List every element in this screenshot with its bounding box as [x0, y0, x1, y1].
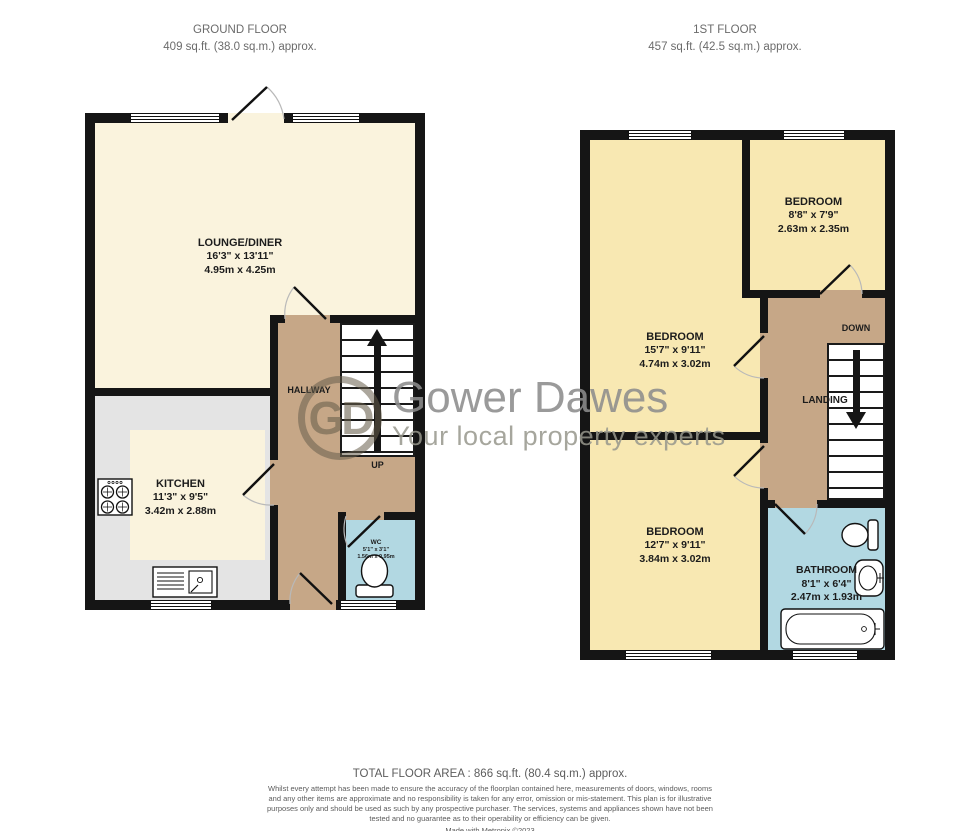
watermark-logo-icon: GD: [298, 376, 382, 460]
room-dims-imperial: 16'3" x 13'11": [140, 250, 340, 264]
room-dims-imperial: 12'7" x 9'11": [590, 539, 760, 553]
bedroom-back-label: BEDROOM 12'7" x 9'11" 3.84m x 3.02m: [590, 525, 760, 567]
wall: [742, 290, 820, 298]
ground-floor-plan: LOUNGE/DINER 16'3" x 13'11" 4.95m x 4.25…: [85, 113, 425, 610]
window: [628, 130, 692, 140]
room-landing: [768, 298, 885, 343]
room-dims-imperial: 11'3" x 9'5": [118, 491, 243, 505]
floorplan-canvas: GROUND FLOOR 409 sq.ft. (38.0 sq.m.) app…: [0, 0, 980, 831]
room-name: BATHROOM: [768, 564, 885, 578]
room-dims-metric: 2.47m x 1.93m: [768, 591, 885, 605]
wall: [95, 388, 278, 396]
room-name: LOUNGE/DINER: [140, 236, 340, 250]
room-name: BEDROOM: [742, 195, 885, 209]
stairs-down-label: DOWN: [827, 323, 885, 333]
stairs-up-label: UP: [340, 460, 415, 470]
watermark-initials: GD: [309, 395, 372, 441]
room-dims-metric: 3.42m x 2.88m: [118, 505, 243, 519]
disclaimer-text: Whilst every attempt has been made to en…: [264, 784, 716, 825]
room-name: KITCHEN: [118, 477, 243, 491]
bedroom-small-label: BEDROOM 8'8" x 7'9" 2.63m x 2.35m: [742, 195, 885, 237]
sink-icon: [152, 566, 218, 598]
door-gap: [820, 290, 862, 298]
room-dims-imperial: 8'8" x 7'9": [742, 209, 885, 223]
wc-label: WC 5'1" x 3'1" 1.56m x 0.95m: [343, 539, 409, 561]
room-dims-imperial: 15'7" x 9'11": [590, 344, 760, 358]
watermark-brand: Gower Dawes: [392, 376, 726, 420]
total-floor-area: TOTAL FLOOR AREA : 866 sq.ft. (80.4 sq.m…: [0, 768, 980, 780]
wall: [760, 488, 768, 650]
door-gap: [760, 333, 768, 378]
room-name: WC: [343, 539, 409, 547]
front-door-gap: [228, 113, 284, 123]
window: [625, 650, 712, 660]
wall: [330, 315, 415, 323]
kitchen-label: KITCHEN 11'3" x 9'5" 3.42m x 2.88m: [118, 477, 243, 519]
room-landing-strip: [768, 343, 827, 500]
ground-floor-title: GROUND FLOOR: [85, 22, 395, 39]
bathroom-label: BATHROOM 8'1" x 6'4" 2.47m x 1.93m: [768, 564, 885, 605]
room-dims-metric: 1.56m x 0.95m: [343, 554, 409, 561]
wall: [862, 290, 885, 298]
first-floor-area: 457 sq.ft. (42.5 sq.m.) approx.: [565, 39, 885, 56]
room-dims-imperial: 8'1" x 6'4": [768, 578, 885, 592]
room-dims-metric: 4.95m x 4.25m: [140, 264, 340, 278]
window: [130, 113, 220, 123]
watermark-text: Gower Dawes Your local property experts: [392, 376, 726, 452]
watermark-tagline: Your local property experts: [392, 421, 726, 452]
ground-floor-header: GROUND FLOOR 409 sq.ft. (38.0 sq.m.) app…: [85, 22, 395, 57]
wall: [270, 505, 278, 600]
wall: [338, 512, 346, 520]
room-hallway: [278, 323, 340, 600]
landing-label: LANDING: [775, 395, 875, 406]
door-gap: [285, 315, 330, 323]
up-arrow-head-icon: [367, 329, 387, 346]
wall: [817, 500, 885, 508]
toilet-icon: [840, 518, 880, 552]
room-dims-metric: 2.63m x 2.35m: [742, 223, 885, 237]
room-dims-metric: 3.84m x 3.02m: [590, 553, 760, 567]
watermark: GD Gower Dawes Your local property exper…: [298, 376, 726, 460]
window: [150, 600, 212, 610]
door-gap: [760, 443, 768, 488]
first-floor-header: 1ST FLOOR 457 sq.ft. (42.5 sq.m.) approx…: [565, 22, 885, 57]
room-name: BEDROOM: [590, 330, 760, 344]
bath-icon: [780, 608, 885, 650]
room-dims-imperial: 5'1" x 3'1": [343, 547, 409, 554]
first-floor-title: 1ST FLOOR: [565, 22, 885, 39]
back-door-gap: [290, 600, 336, 610]
door-gap: [346, 512, 384, 520]
room-dims-metric: 4.74m x 3.02m: [590, 358, 760, 372]
wall: [760, 298, 768, 333]
window: [783, 130, 845, 140]
down-arrow-head-icon: [846, 412, 866, 429]
window: [292, 113, 360, 123]
window: [340, 600, 397, 610]
window: [792, 650, 858, 660]
ground-floor-area: 409 sq.ft. (38.0 sq.m.) approx.: [85, 39, 395, 56]
wall: [384, 512, 415, 520]
credit-text: Made with Metropix ©2023: [0, 826, 980, 831]
room-name: BEDROOM: [590, 525, 760, 539]
footer: TOTAL FLOOR AREA : 866 sq.ft. (80.4 sq.m…: [0, 768, 980, 831]
wall: [270, 315, 285, 323]
door-gap: [270, 460, 278, 505]
wall: [768, 500, 775, 508]
lounge-label: LOUNGE/DINER 16'3" x 13'11" 4.95m x 4.25…: [140, 236, 340, 278]
door-gap: [775, 500, 817, 508]
bedroom-front-label: BEDROOM 15'7" x 9'11" 4.74m x 3.02m: [590, 330, 760, 372]
